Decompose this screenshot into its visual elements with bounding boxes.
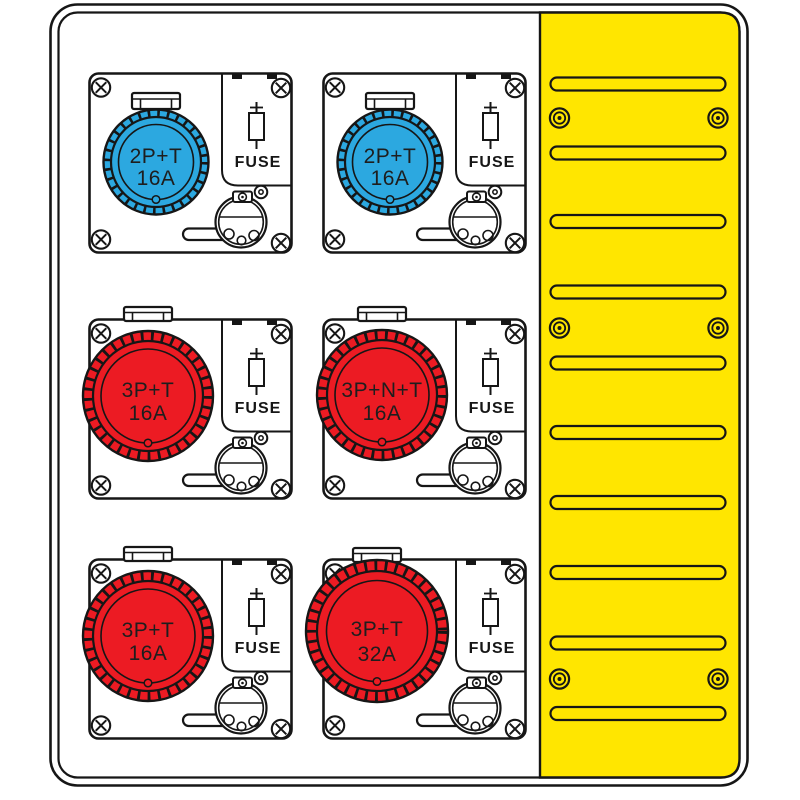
- fuse-label: FUSE: [235, 640, 282, 657]
- vent-slot: [551, 496, 726, 509]
- vent-slot: [551, 637, 726, 650]
- lid-tab: [124, 307, 172, 321]
- socket-type-label: 2P+T: [130, 145, 183, 168]
- vent-slot: [551, 707, 726, 720]
- socket-type-label: 2P+T: [364, 145, 417, 168]
- vent-panel: [540, 13, 740, 778]
- vent-panel-cover: [540, 13, 740, 778]
- lid-tab: [366, 93, 414, 109]
- socket-rating-label: 16A: [129, 402, 168, 425]
- socket-module-2p-t-16a-2: 2P+T 16A FUSE: [322, 72, 527, 254]
- lid-tab: [124, 547, 172, 561]
- cee-socket: 2P+T 16A: [338, 110, 443, 215]
- socket-module-3p-t-32a: 3P+T 32A FUSE: [322, 558, 527, 740]
- socket-module-2p-t-16a-1: 2P+T 16A FUSE: [88, 72, 293, 254]
- fuse-label: FUSE: [469, 154, 516, 171]
- cee-socket: 3P+T 32A: [306, 560, 448, 702]
- socket-rating-label: 16A: [363, 402, 402, 425]
- cee-socket: 2P+T 16A: [104, 110, 209, 215]
- vent-slot: [551, 78, 726, 91]
- socket-module-3p-t-16a-1: 3P+T 16A FUSE: [88, 318, 293, 500]
- socket-rating-label: 16A: [137, 167, 176, 190]
- socket-type-label: 3P+T: [351, 618, 404, 641]
- socket-type-label: 3P+T: [122, 379, 175, 402]
- lid-tab: [132, 93, 180, 109]
- vent-slot: [551, 215, 726, 228]
- socket-module-3p-t-16a-2: 3P+T 16A FUSE: [88, 558, 293, 740]
- vent-slot: [551, 566, 726, 579]
- vent-slot: [551, 286, 726, 299]
- distribution-board-drawing: 2P+T 16A FUSE 2P+T 16A FUSE: [0, 0, 800, 800]
- cee-socket: 3P+T 16A: [83, 331, 213, 461]
- socket-rating-label: 32A: [358, 643, 397, 666]
- socket-rating-label: 16A: [371, 167, 410, 190]
- cee-socket: 3P+N+T 16A: [317, 330, 447, 460]
- fuse-label: FUSE: [469, 640, 516, 657]
- socket-type-label: 3P+T: [122, 619, 175, 642]
- vent-slot: [551, 147, 726, 160]
- vent-slot: [551, 357, 726, 370]
- socket-rating-label: 16A: [129, 642, 168, 665]
- socket-module-3p-n-t-16a: 3P+N+T 16A FUSE: [322, 318, 527, 500]
- lid-tab: [358, 307, 406, 321]
- fuse-label: FUSE: [469, 400, 516, 417]
- cee-socket: 3P+T 16A: [83, 571, 213, 701]
- fuse-label: FUSE: [235, 400, 282, 417]
- socket-type-label: 3P+N+T: [341, 379, 422, 402]
- fuse-label: FUSE: [235, 154, 282, 171]
- vent-slot: [551, 426, 726, 439]
